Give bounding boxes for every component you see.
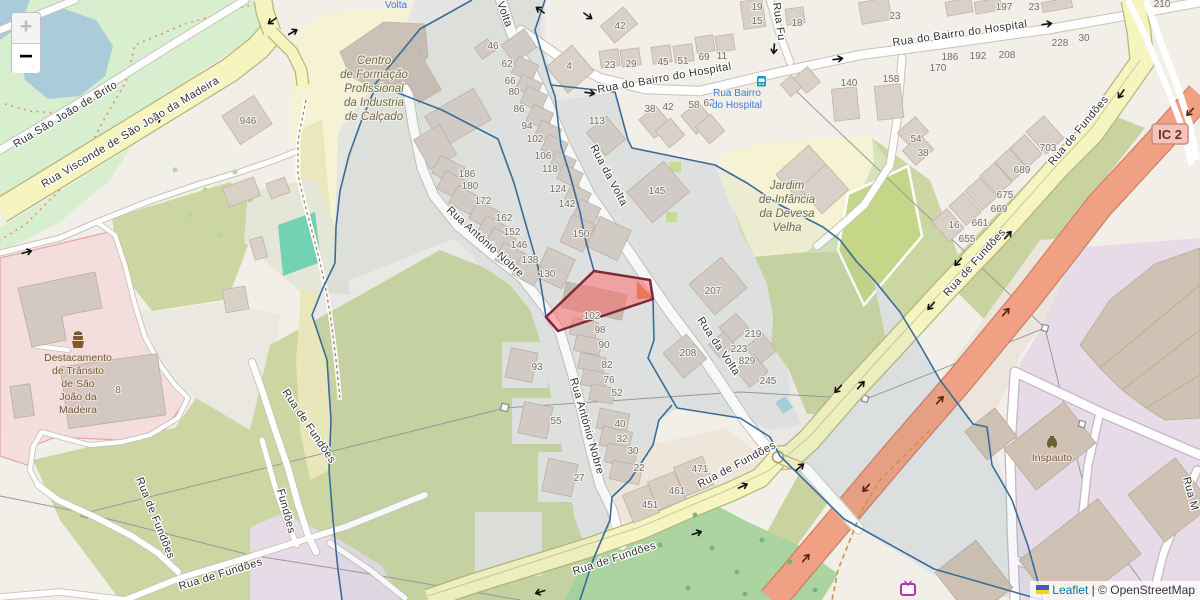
svg-text:197: 197 [996,2,1013,13]
svg-text:451: 451 [642,500,659,511]
svg-text:142: 142 [559,199,576,210]
svg-text:152: 152 [504,227,521,238]
svg-text:de Infância: de Infância [759,194,815,206]
svg-text:8: 8 [115,385,121,396]
svg-text:146: 146 [511,240,528,251]
svg-text:106: 106 [535,151,552,162]
svg-text:Velha: Velha [773,222,802,234]
svg-text:Centro: Centro [357,55,392,67]
svg-text:170: 170 [930,63,947,74]
svg-text:113: 113 [589,116,605,127]
svg-text:162: 162 [496,213,513,224]
svg-text:245: 245 [760,376,777,387]
svg-text:689: 689 [1014,165,1031,176]
svg-text:38: 38 [644,104,656,115]
svg-text:4: 4 [566,61,572,72]
svg-text:Madeira: Madeira [59,404,97,416]
svg-text:219: 219 [745,329,762,340]
svg-text:32: 32 [616,434,628,445]
svg-text:João da: João da [59,391,97,403]
svg-text:192: 192 [970,51,987,62]
svg-text:655: 655 [959,234,976,245]
svg-text:15: 15 [751,16,763,27]
svg-text:de Formação: de Formação [340,69,408,81]
svg-text:130: 130 [539,269,556,280]
svg-text:55: 55 [550,416,562,427]
svg-text:69: 69 [698,52,710,63]
svg-text:675: 675 [997,190,1014,201]
svg-text:51: 51 [677,56,689,67]
svg-text:Destacamento: Destacamento [44,352,112,364]
svg-text:52: 52 [611,388,623,399]
svg-text:Profissional: Profissional [344,83,404,95]
svg-text:da Devesa: da Devesa [760,208,815,220]
svg-text:16: 16 [948,220,960,231]
svg-text:38: 38 [917,148,929,159]
svg-text:Volta: Volta [385,0,408,11]
svg-text:150: 150 [573,229,590,240]
svg-text:223: 223 [731,344,748,355]
svg-text:42: 42 [614,21,626,32]
svg-text:27: 27 [573,473,585,484]
svg-text:40: 40 [614,419,626,430]
svg-text:461: 461 [669,486,686,497]
svg-text:80: 80 [508,87,520,98]
svg-text:19: 19 [751,2,763,13]
svg-text:Jardim: Jardim [769,180,805,192]
svg-text:da Industria: da Industria [344,97,404,109]
svg-text:208: 208 [680,348,697,359]
svg-text:661: 661 [972,218,989,229]
svg-text:22: 22 [633,463,645,474]
svg-text:118: 118 [542,164,558,175]
svg-text:82: 82 [601,360,613,371]
svg-text:Inspauto: Inspauto [1032,452,1072,464]
svg-text:94: 94 [521,121,533,132]
svg-text:946: 946 [240,116,257,127]
svg-text:54: 54 [910,134,922,145]
svg-text:de Trânsito: de Trânsito [52,365,104,377]
svg-text:Rua Bairro: Rua Bairro [713,88,761,99]
svg-text:62: 62 [501,59,513,70]
svg-text:46: 46 [487,41,499,52]
svg-text:186: 186 [459,169,476,180]
svg-text:11: 11 [717,51,728,62]
svg-text:58: 58 [688,100,700,111]
svg-text:829: 829 [739,356,756,367]
svg-text:180: 180 [462,181,479,192]
svg-text:186: 186 [942,52,959,63]
svg-text:18: 18 [791,18,803,29]
svg-text:703: 703 [1040,143,1057,154]
svg-text:158: 158 [883,74,900,85]
svg-text:669: 669 [991,204,1008,215]
svg-text:172: 172 [475,196,492,207]
svg-text:66: 66 [504,76,516,87]
svg-text:138: 138 [522,255,539,266]
svg-text:23: 23 [604,60,616,71]
svg-text:76: 76 [603,375,615,386]
svg-text:207: 207 [705,286,722,297]
svg-text:93: 93 [531,362,543,373]
svg-text:228: 228 [1052,38,1069,49]
svg-text:471: 471 [692,464,709,475]
svg-text:145: 145 [649,186,666,197]
svg-text:210: 210 [1154,0,1171,10]
svg-text:do Hospital: do Hospital [712,100,762,111]
svg-text:23: 23 [889,11,901,22]
svg-text:23: 23 [1028,2,1040,13]
svg-text:208: 208 [999,50,1016,61]
svg-text:90: 90 [598,340,610,351]
svg-text:42: 42 [662,102,674,113]
svg-text:102: 102 [584,311,601,322]
svg-text:IC 2: IC 2 [1158,127,1182,142]
svg-text:de Calçado: de Calçado [345,111,404,123]
svg-text:30: 30 [627,446,639,457]
svg-text:45: 45 [657,57,669,68]
svg-text:102: 102 [527,134,544,145]
svg-text:de São: de São [61,378,94,390]
svg-text:124: 124 [550,184,567,195]
svg-text:30: 30 [1078,33,1090,44]
svg-text:98: 98 [594,325,606,336]
svg-text:86: 86 [513,104,525,115]
svg-text:140: 140 [841,78,858,89]
svg-text:29: 29 [625,59,637,70]
